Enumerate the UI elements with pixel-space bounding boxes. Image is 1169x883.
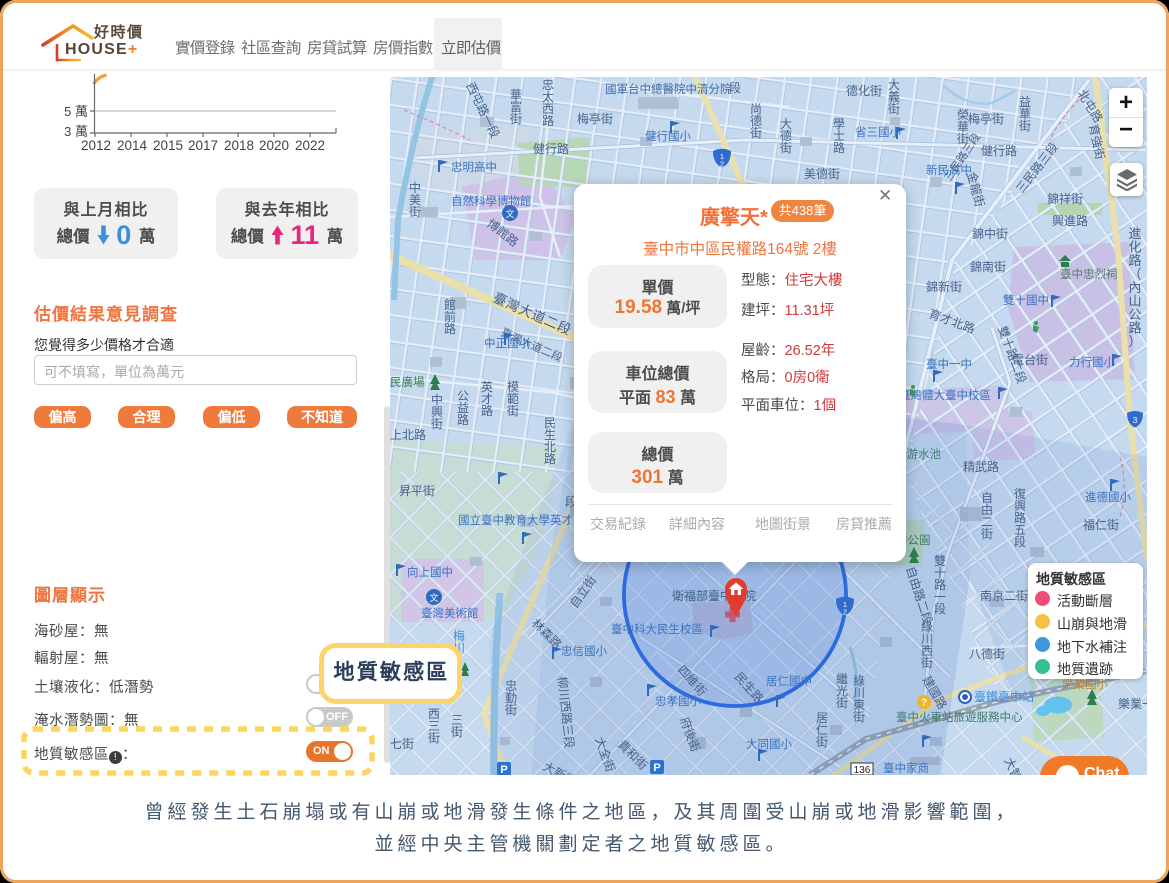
svg-text:2022: 2022 (295, 138, 325, 153)
svg-text:興進路: 興進路 (1052, 213, 1088, 228)
svg-text:3: 3 (1133, 415, 1138, 425)
svg-text:雙十路一段: 雙十路一段 (934, 554, 946, 616)
svg-text:省三國小: 省三國小 (855, 126, 901, 139)
svg-text:模範街: 模範街 (507, 380, 519, 418)
svg-text:益華街: 益華街 (1019, 95, 1031, 133)
svg-text:居仁街: 居仁街 (816, 711, 828, 749)
svg-text:雙十國中: 雙十國中 (1003, 293, 1049, 307)
svg-text:德化街: 德化街 (846, 83, 882, 98)
svg-text:文: 文 (429, 592, 438, 603)
svg-text:P: P (653, 762, 660, 774)
svg-text:樂業一: 樂業一 (1118, 696, 1147, 711)
svg-text:復興路五段: 復興路五段 (1014, 486, 1026, 549)
svg-text:大同國小: 大同國小 (746, 737, 792, 751)
svg-text:力行國小: 力行國小 (1069, 356, 1115, 369)
svg-text:美德街: 美德街 (804, 166, 840, 181)
svg-text:公益路: 公益路 (457, 389, 469, 427)
svg-text:臺中火車站旅遊服務中心: 臺中火車站旅遊服務中心 (896, 710, 1023, 724)
svg-text:自然科學博物館: 自然科學博物館 (451, 194, 532, 208)
svg-text:梅亭街: 梅亭街 (968, 111, 1004, 126)
svg-text:錦中街: 錦中街 (972, 226, 1008, 241)
svg-text:大德街: 大德街 (780, 117, 792, 155)
svg-text:錦南街: 錦南街 (970, 259, 1006, 274)
svg-text:忠信國小: 忠信國小 (561, 645, 607, 658)
svg-text:?: ? (921, 698, 927, 709)
svg-text:3 萬: 3 萬 (64, 124, 88, 139)
svg-text:上北路: 上北路 (390, 427, 426, 442)
svg-text:2017: 2017 (188, 138, 218, 153)
svg-text:臺中一中: 臺中一中 (926, 357, 972, 371)
svg-text:2: 2 (843, 608, 847, 617)
svg-text:民生北路: 民生北路 (544, 416, 556, 466)
svg-text:居仁國中: 居仁國中 (766, 675, 812, 688)
svg-text:樂業國小: 樂業國小 (1062, 677, 1108, 691)
svg-text:臺灣美術館: 臺灣美術館 (421, 606, 479, 620)
svg-text:繼光街: 繼光街 (836, 672, 848, 710)
svg-text:臺鐵臺中站: 臺鐵臺中站 (974, 689, 1034, 704)
svg-text:臺中家商: 臺中家商 (883, 761, 929, 775)
svg-text:健行國小: 健行國小 (645, 130, 691, 143)
svg-text:英才路: 英才路 (481, 380, 493, 418)
svg-text:西三街: 西三街 (428, 707, 440, 745)
svg-text:國軍台中總醫院中清分院: 國軍台中總醫院中清分院 (605, 82, 732, 96)
svg-text:精武路: 精武路 (963, 459, 999, 474)
svg-text:民廣場: 民廣場 (390, 375, 425, 389)
svg-text:健行路: 健行路 (533, 141, 569, 156)
svg-text:綠川東街: 綠川東街 (853, 674, 865, 724)
svg-text:向上國中: 向上國中 (407, 565, 453, 579)
svg-text:國立臺中教育大學英才: 國立臺中教育大學英才 (458, 513, 573, 527)
svg-text:文: 文 (505, 208, 514, 219)
svg-text:忠勤街: 忠勤街 (505, 679, 517, 717)
svg-text:2018: 2018 (224, 138, 254, 153)
svg-text:南京二街: 南京二街 (980, 588, 1028, 603)
svg-text:學士路: 學士路 (833, 117, 845, 155)
svg-text:綠川西街: 綠川西街 (921, 620, 933, 670)
svg-text:2015: 2015 (153, 138, 183, 153)
svg-text:忠明高中: 忠明高中 (451, 160, 497, 174)
svg-text:自由二街: 自由二街 (981, 491, 993, 541)
svg-text:中興街: 中興街 (431, 392, 443, 431)
svg-text:段: 段 (729, 80, 741, 95)
svg-text:錦新街: 錦新街 (926, 279, 962, 294)
svg-text:福仁街: 福仁街 (1083, 517, 1119, 532)
svg-text:忠孝國小: 忠孝國小 (655, 695, 701, 708)
svg-text:2020: 2020 (259, 138, 289, 153)
svg-text:臺中忠烈祠: 臺中忠烈祠 (1060, 267, 1118, 281)
svg-text:昇平街: 昇平街 (399, 484, 435, 498)
svg-text:2014: 2014 (117, 138, 148, 153)
svg-text:三街: 三街 (451, 713, 463, 739)
svg-text:大義街: 大義街 (888, 78, 900, 116)
svg-text:中美街: 中美街 (409, 180, 421, 219)
svg-text:健行路: 健行路 (981, 143, 1017, 158)
svg-text:P: P (500, 764, 507, 775)
svg-text:尚德街: 尚德街 (750, 102, 762, 140)
svg-text:忠太西路: 忠太西路 (542, 78, 554, 128)
svg-text:136: 136 (854, 765, 871, 775)
svg-text:2: 2 (720, 160, 724, 169)
svg-text:錦祥街: 錦祥街 (1047, 191, 1083, 206)
svg-text:八德街: 八德街 (969, 646, 1005, 661)
svg-text:梅亭街: 梅亭街 (577, 111, 613, 126)
svg-text:七街: 七街 (390, 737, 414, 751)
svg-text:進化路（內山公路）: 進化路（內山公路） (1128, 226, 1141, 349)
svg-text:臺中科大民生校區: 臺中科大民生校區 (611, 622, 703, 636)
svg-text:2012: 2012 (81, 138, 111, 153)
svg-text:華富街: 華富街 (510, 88, 522, 126)
svg-text:館前路: 館前路 (444, 297, 456, 336)
svg-text:進德國小: 進德國小 (1085, 490, 1131, 504)
svg-text:5 萬: 5 萬 (64, 104, 88, 119)
